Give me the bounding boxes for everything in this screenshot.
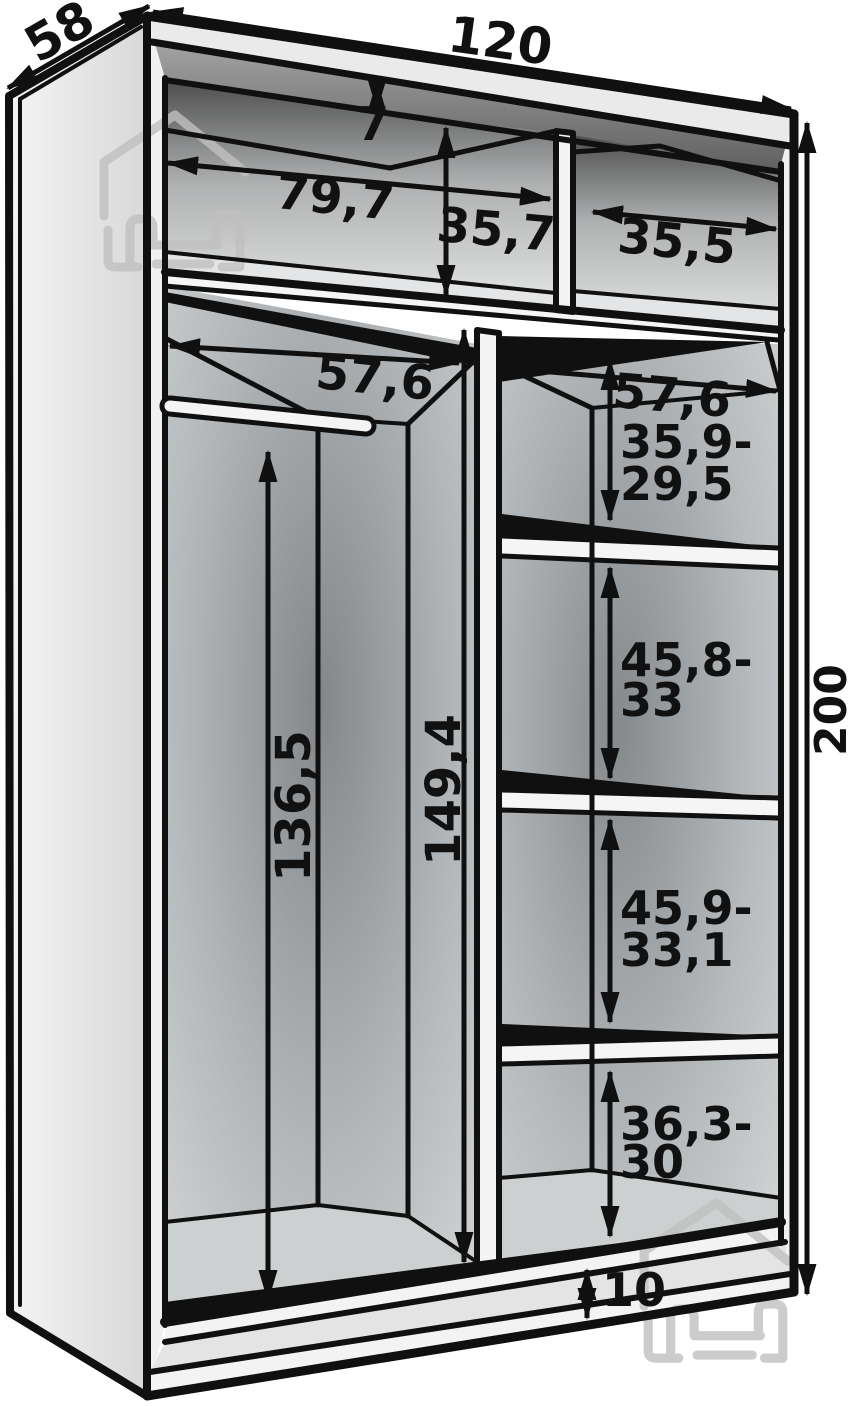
label-gap-1-line2: 29,5 (620, 457, 734, 511)
label-top-gap: 7 (357, 97, 389, 151)
center-divider-panel (477, 330, 499, 1271)
label-gap-3-line2: 33,1 (620, 923, 734, 977)
label-gap-4-line2: 30 (620, 1135, 684, 1189)
label-overall-height: 200 (806, 664, 848, 756)
label-plinth-height: 10 (602, 1263, 666, 1317)
diagram-canvas: 58 120 200 7 79,7 35,7 35,5 57,6 57,6 13… (0, 0, 848, 1406)
label-divider-height: 149,4 (416, 714, 472, 866)
wardrobe-diagram: 58 120 200 7 79,7 35,7 35,5 57,6 57,6 13… (0, 0, 848, 1406)
label-gap-2-line2: 33 (620, 673, 684, 727)
label-upper-left-height: 35,7 (435, 197, 558, 263)
label-hanging-clearance: 136,5 (266, 730, 322, 882)
